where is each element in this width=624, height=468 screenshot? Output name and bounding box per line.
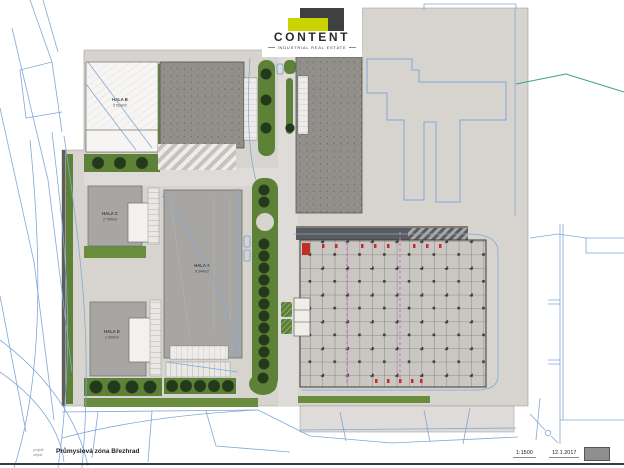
drawing-title: Průmyslová zóna Březhrad: [56, 448, 139, 455]
titleblock-stamp-box: [584, 447, 610, 461]
median-cutout: [256, 213, 274, 231]
hala-c-area: 2 799m2: [103, 218, 117, 222]
warehouse-grid-large: [294, 226, 486, 387]
loading-docks: [244, 78, 257, 140]
hala-a-area: 8 544m2: [195, 270, 209, 274]
green-island: [281, 302, 292, 317]
tagline-rule-right: [349, 47, 356, 48]
crosswalk-ramp: [158, 144, 236, 170]
column-grid: [300, 240, 486, 387]
titleblock-rule: [0, 463, 624, 465]
content-logo: CONTENT INDUSTRIAL REAL ESTATE: [262, 0, 362, 57]
loading-docks: [170, 346, 228, 359]
titleblock-field-labels: projekt objekt: [33, 448, 44, 458]
hala-d-label: HALA D: [104, 329, 120, 334]
warehouse-top-left: [160, 62, 257, 148]
hala-c-label: HALA C: [102, 211, 118, 216]
green-island: [281, 319, 292, 334]
titleblock-label-2: objekt: [33, 453, 44, 458]
building-hala-a: HALA A 8 544m2: [164, 190, 242, 377]
content-logo-mark-icon: [262, 0, 362, 32]
loading-docks: [298, 76, 308, 134]
logo-tagline-row: INDUSTRIAL REAL ESTATE: [268, 45, 357, 50]
utility-line-teal: [516, 74, 624, 92]
dock-annex: [294, 298, 310, 336]
west-edge-wall: [62, 150, 66, 406]
tagline-rule-left: [268, 47, 275, 48]
parking-stalls-d: [150, 300, 161, 376]
logo-lime-block: [288, 18, 328, 31]
drawing-date: 12.1.2017: [549, 450, 579, 458]
logo-tagline-text: INDUSTRIAL REAL ESTATE: [278, 45, 347, 50]
warehouse-top-right: [296, 57, 362, 213]
building-hala-d: HALA D 2 399m2: [90, 300, 161, 376]
building-hala-c: HALA C 2 799m2: [88, 186, 159, 246]
logo-brand-text: CONTENT: [274, 32, 350, 43]
site-plan-svg: HALA B 3 599m2 HALA C 2 799m2: [0, 0, 624, 468]
parking-stalls-c: [148, 188, 159, 244]
drawing-scale: 1:1500: [513, 450, 536, 458]
site-plan-page: HALA B 3 599m2 HALA C 2 799m2: [0, 0, 624, 468]
hala-d-area: 2 399m2: [105, 336, 119, 340]
